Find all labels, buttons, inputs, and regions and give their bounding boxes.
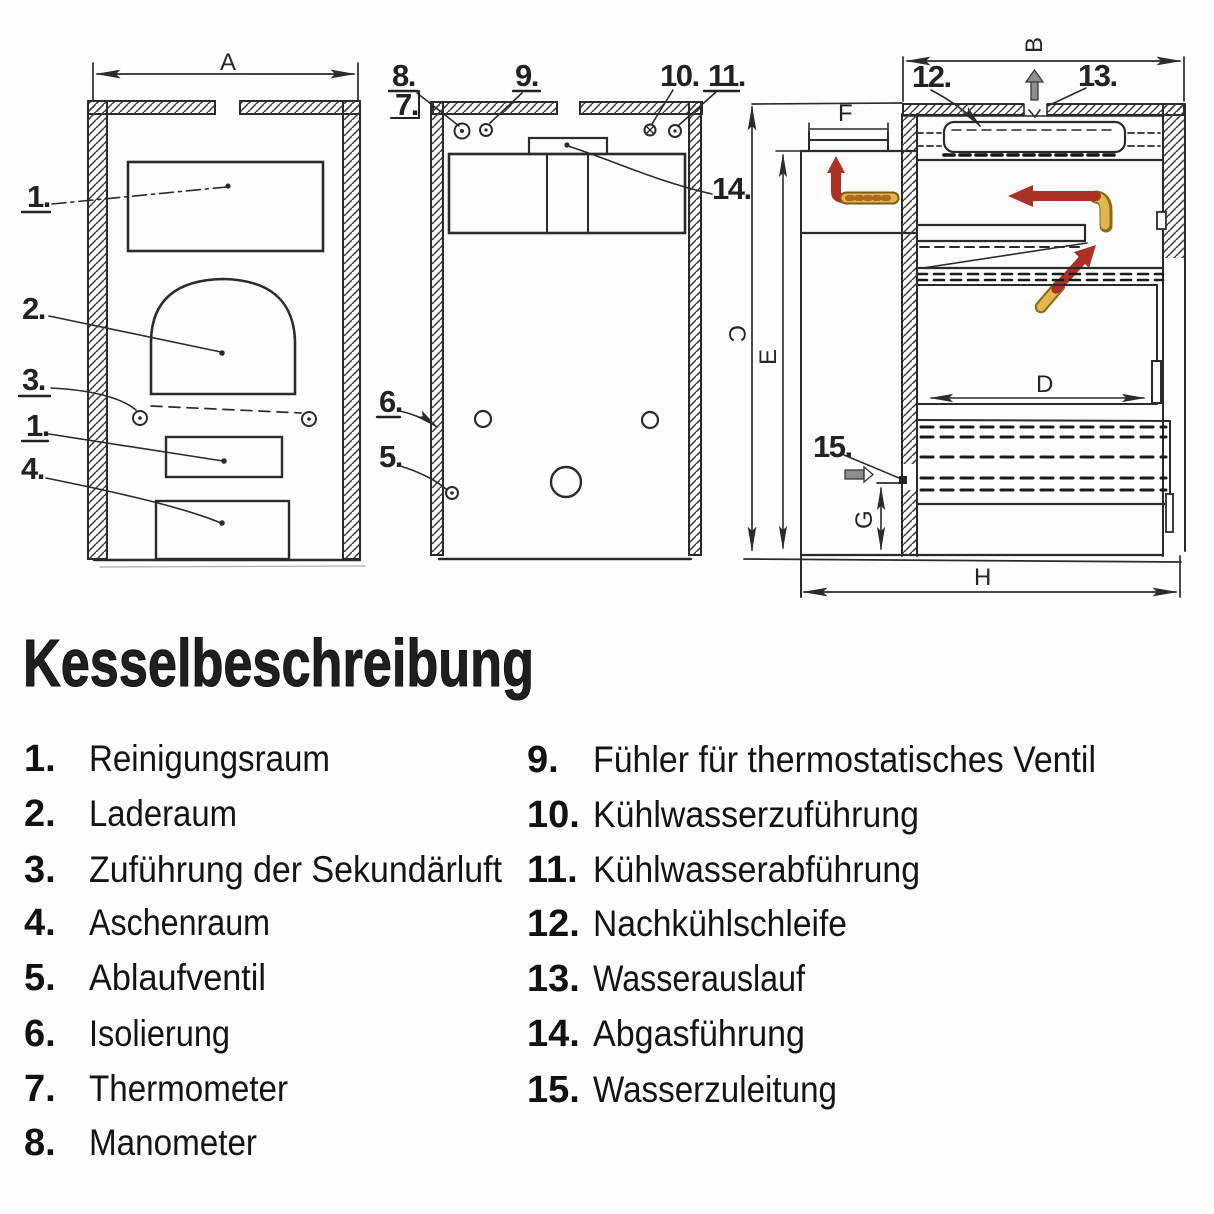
svg-text:Ablaufventil: Ablaufventil xyxy=(89,957,266,998)
svg-text:D: D xyxy=(1036,371,1053,398)
svg-text:Thermometer: Thermometer xyxy=(89,1068,288,1109)
svg-text:12.: 12. xyxy=(912,59,951,94)
svg-text:Kühlwasserzuführung: Kühlwasserzuführung xyxy=(593,794,919,835)
svg-text:13.: 13. xyxy=(527,958,580,1000)
svg-text:Reinigungsraum: Reinigungsraum xyxy=(89,738,330,779)
svg-text:1.: 1. xyxy=(26,408,49,443)
svg-text:Wasserauslauf: Wasserauslauf xyxy=(593,958,806,999)
svg-text:6.: 6. xyxy=(379,384,402,419)
svg-text:3.: 3. xyxy=(22,362,45,397)
svg-text:2.: 2. xyxy=(22,291,45,326)
svg-text:E: E xyxy=(755,349,782,365)
svg-text:4.: 4. xyxy=(21,451,44,486)
svg-text:9.: 9. xyxy=(515,58,538,93)
svg-text:8.: 8. xyxy=(24,1122,56,1164)
svg-text:Laderaum: Laderaum xyxy=(89,793,237,834)
svg-text:4.: 4. xyxy=(24,902,56,944)
svg-text:9.: 9. xyxy=(527,739,559,781)
svg-text:F: F xyxy=(838,100,853,127)
svg-text:Abgasführung: Abgasführung xyxy=(593,1013,805,1054)
svg-text:10.: 10. xyxy=(660,58,699,93)
svg-text:13.: 13. xyxy=(1078,58,1117,93)
svg-text:B: B xyxy=(1021,37,1048,53)
svg-text:1.: 1. xyxy=(24,738,56,780)
svg-text:Kühlwasserabführung: Kühlwasserabführung xyxy=(593,849,920,890)
svg-text:Zuführung der Sekundärluft: Zuführung der Sekundärluft xyxy=(89,849,503,890)
svg-text:5.: 5. xyxy=(379,439,402,474)
svg-text:Isolierung: Isolierung xyxy=(89,1013,230,1054)
svg-text:Wasserzuleitung: Wasserzuleitung xyxy=(593,1069,837,1110)
svg-text:15.: 15. xyxy=(813,429,852,464)
svg-text:3.: 3. xyxy=(24,849,56,891)
svg-text:10.: 10. xyxy=(527,794,580,836)
svg-text:1.: 1. xyxy=(27,179,50,214)
svg-text:11.: 11. xyxy=(527,849,578,891)
svg-text:5.: 5. xyxy=(24,957,56,999)
svg-text:Fühler für thermostatisches Ve: Fühler für thermostatisches Ventil xyxy=(593,739,1096,780)
svg-text:14.: 14. xyxy=(527,1013,580,1055)
svg-text:G: G xyxy=(851,510,878,529)
svg-text:Kesselbeschreibung: Kesselbeschreibung xyxy=(23,626,534,701)
svg-text:H: H xyxy=(974,564,991,591)
svg-text:Manometer: Manometer xyxy=(89,1122,257,1163)
svg-text:14.: 14. xyxy=(712,171,751,206)
svg-text:Nachkühlschleife: Nachkühlschleife xyxy=(593,903,847,944)
svg-text:7.: 7. xyxy=(395,87,418,122)
svg-text:12.: 12. xyxy=(527,903,580,945)
svg-text:6.: 6. xyxy=(24,1013,56,1055)
svg-text:Aschenraum: Aschenraum xyxy=(89,902,270,943)
svg-text:C: C xyxy=(723,325,750,342)
svg-text:2.: 2. xyxy=(24,793,56,835)
svg-text:7.: 7. xyxy=(24,1068,56,1110)
svg-text:A: A xyxy=(220,49,236,76)
svg-text:11.: 11. xyxy=(708,58,745,93)
svg-text:15.: 15. xyxy=(527,1069,580,1111)
